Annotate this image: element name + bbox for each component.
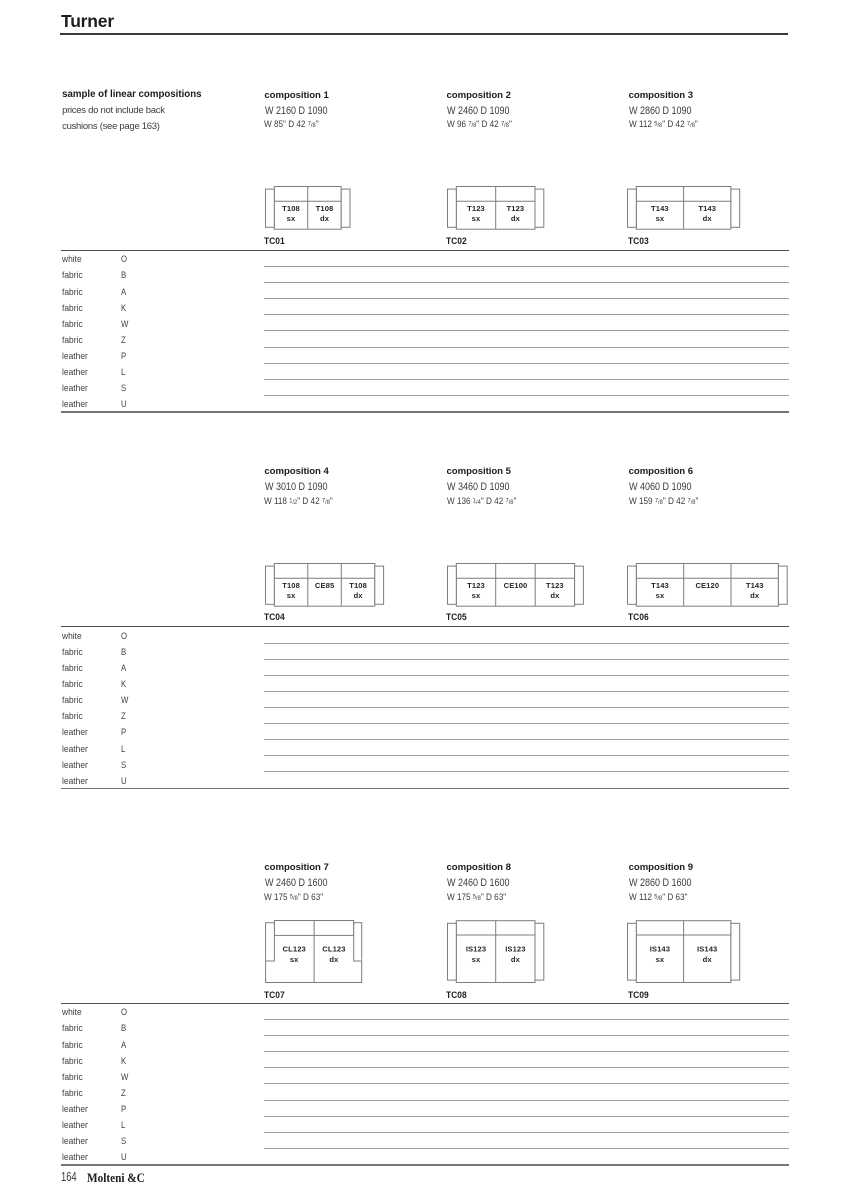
svg-text:T143: T143	[746, 581, 764, 590]
svg-text:dx: dx	[319, 214, 329, 223]
svg-text:T108: T108	[282, 581, 300, 590]
svg-text:dx: dx	[750, 591, 760, 600]
svg-text:T143: T143	[651, 204, 669, 213]
svg-text:sx: sx	[286, 591, 295, 600]
svg-text:dx: dx	[353, 591, 363, 600]
svg-text:T123: T123	[467, 581, 485, 590]
svg-text:sx: sx	[289, 955, 298, 964]
svg-text:T108: T108	[349, 581, 367, 590]
svg-text:dx: dx	[703, 214, 713, 223]
svg-text:T143: T143	[651, 581, 669, 590]
svg-text:dx: dx	[510, 214, 520, 223]
svg-text:dx: dx	[550, 591, 560, 600]
svg-text:sx: sx	[286, 214, 295, 223]
svg-text:T123: T123	[467, 204, 485, 213]
svg-text:T123: T123	[546, 581, 564, 590]
svg-text:sx: sx	[656, 214, 665, 223]
svg-text:IS123: IS123	[465, 945, 485, 954]
svg-text:CE100: CE100	[503, 581, 527, 590]
svg-text:T123: T123	[506, 204, 524, 213]
svg-text:CL123: CL123	[322, 945, 345, 954]
svg-text:sx: sx	[656, 591, 665, 600]
svg-text:sx: sx	[471, 214, 480, 223]
svg-text:dx: dx	[703, 955, 713, 964]
svg-text:sx: sx	[471, 955, 480, 964]
svg-text:IS143: IS143	[650, 945, 670, 954]
svg-text:CE85: CE85	[314, 581, 334, 590]
svg-text:CE120: CE120	[695, 581, 719, 590]
svg-text:dx: dx	[510, 955, 520, 964]
svg-text:IS143: IS143	[697, 945, 717, 954]
svg-text:T143: T143	[698, 204, 716, 213]
svg-text:T108: T108	[315, 204, 333, 213]
svg-text:sx: sx	[471, 591, 480, 600]
svg-text:CL123: CL123	[282, 945, 305, 954]
svg-text:IS123: IS123	[505, 945, 525, 954]
svg-text:dx: dx	[329, 955, 339, 964]
svg-text:sx: sx	[656, 955, 665, 964]
svg-text:T108: T108	[282, 204, 300, 213]
